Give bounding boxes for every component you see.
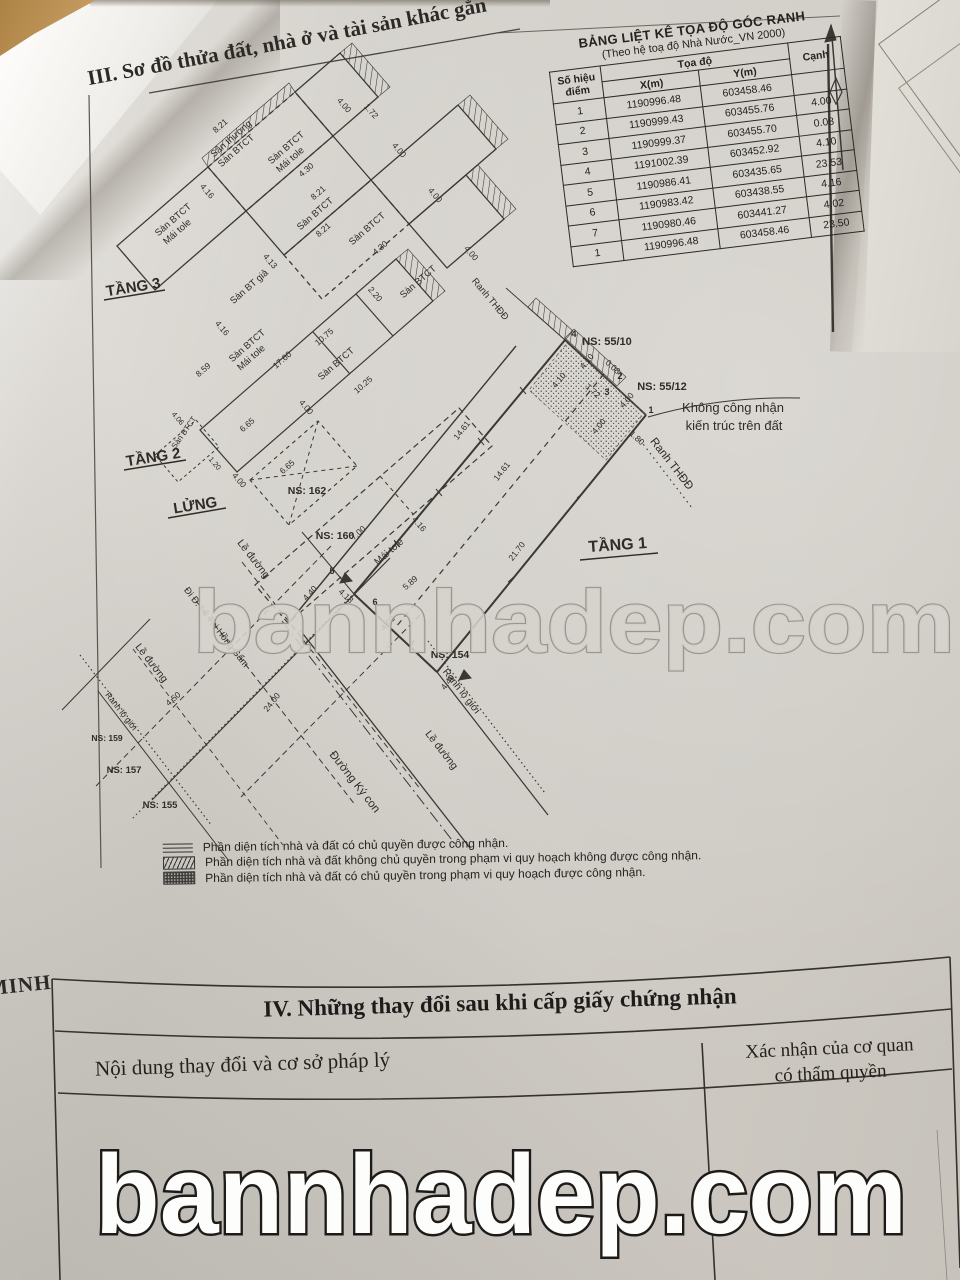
watermark-middle: bannhadep.com: [193, 572, 955, 671]
photographed-land-certificate-page: { "document": { "section3_title": "III. …: [0, 0, 960, 1280]
watermark-bottom: bannhadep.com: [95, 1132, 907, 1257]
watermark-layer: bannhadep.com bannhadep.com: [0, 0, 960, 1280]
